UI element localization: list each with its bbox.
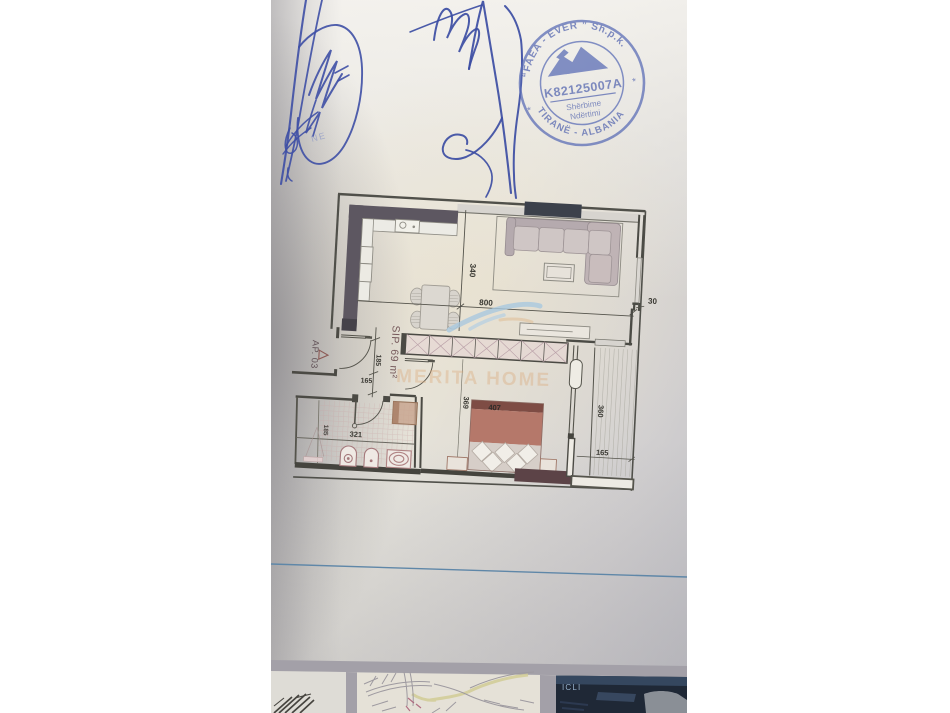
svg-text:185: 185 [321,424,329,436]
svg-text:*: * [632,76,637,87]
svg-text:369: 369 [461,396,471,409]
svg-text:165: 165 [596,448,609,458]
svg-text:ICLI: ICLI [562,683,581,692]
svg-text:NE: NE [310,130,328,144]
svg-text:30: 30 [648,296,658,306]
svg-text:360: 360 [596,405,606,418]
svg-text:340: 340 [468,263,478,278]
svg-text:MERITA HOME: MERITA HOME [396,366,551,391]
svg-text:321: 321 [349,430,362,440]
svg-text:*: * [527,105,532,116]
svg-text:185: 185 [374,354,382,366]
svg-text:165: 165 [360,378,372,386]
svg-text:800: 800 [479,298,494,308]
svg-text:407: 407 [488,403,501,413]
